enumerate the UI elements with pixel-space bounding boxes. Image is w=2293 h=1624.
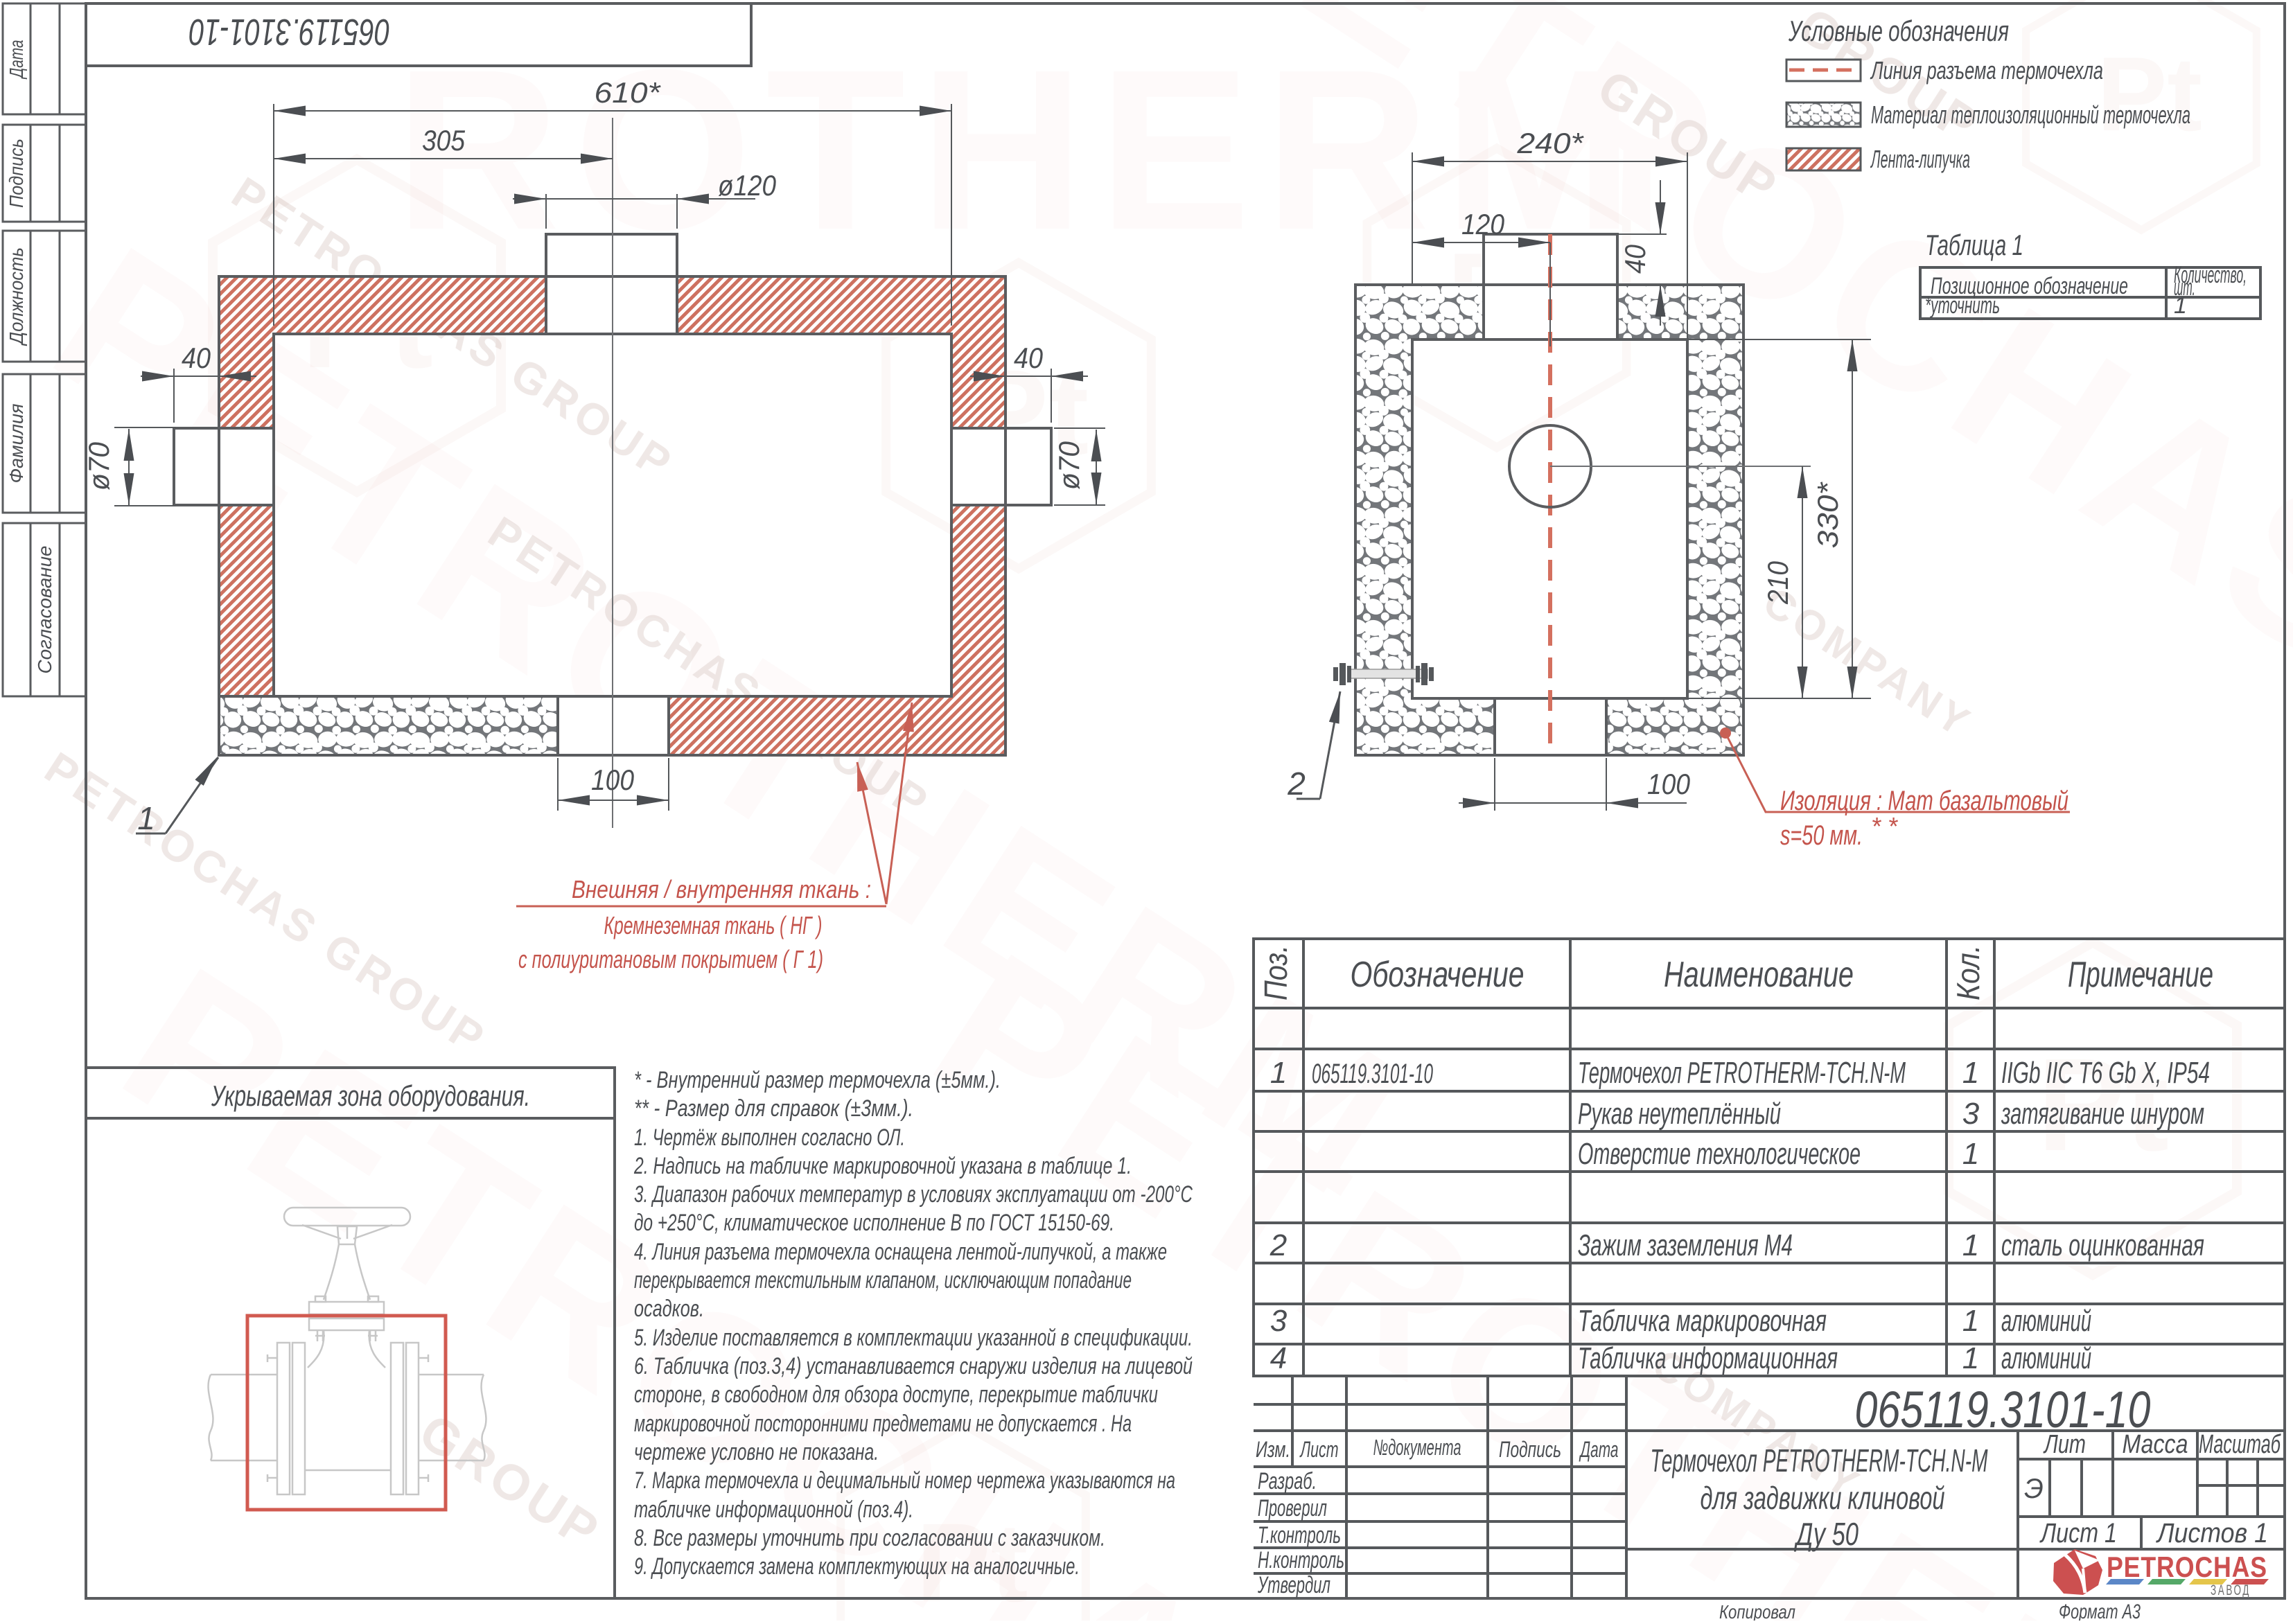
svg-text:Согласование: Согласование xyxy=(34,546,55,674)
svg-text:осадков.: осадков. xyxy=(634,1296,704,1322)
svg-text:Утвердил: Утвердил xyxy=(1257,1572,1330,1598)
svg-text:Масштаб: Масштаб xyxy=(2199,1430,2281,1459)
svg-text:s=50 мм.: s=50 мм. xyxy=(1780,820,1863,851)
svg-text:перекрывается текстильным клап: перекрывается текстильным клапаном, искл… xyxy=(634,1267,1132,1294)
svg-text:330*: 330* xyxy=(1811,482,1844,549)
svg-text:затягивание шнуром: затягивание шнуром xyxy=(2001,1097,2204,1131)
svg-text:1: 1 xyxy=(1962,1304,1979,1338)
svg-text:065119.3101-10: 065119.3101-10 xyxy=(1312,1059,1433,1089)
svg-text:* *: * * xyxy=(1871,812,1898,840)
svg-text:Лист: Лист xyxy=(1299,1437,1338,1462)
svg-text:1: 1 xyxy=(1962,1341,1979,1375)
svg-text:3: 3 xyxy=(1962,1097,1980,1131)
svg-text:маркировочной посторонними пре: маркировочной посторонними предметами не… xyxy=(634,1411,1132,1437)
svg-text:ø70: ø70 xyxy=(1053,441,1085,490)
svg-text:Дата: Дата xyxy=(1579,1437,1619,1462)
svg-text:Дата: Дата xyxy=(6,39,27,79)
svg-text:8. Все размеры уточнить при со: 8. Все размеры уточнить при согласовании… xyxy=(634,1525,1105,1551)
svg-text:Лист 1: Лист 1 xyxy=(2039,1518,2117,1548)
svg-text:065119.3101-10: 065119.3101-10 xyxy=(189,11,390,53)
svg-text:2: 2 xyxy=(1270,1228,1287,1262)
svg-text:Лит: Лит xyxy=(2043,1430,2086,1459)
svg-text:2: 2 xyxy=(1287,766,1306,802)
svg-text:065119.3101-10: 065119.3101-10 xyxy=(1855,1381,2151,1438)
svg-text:2. Надпись на табличке маркиро: 2. Надпись на табличке маркировочной ука… xyxy=(633,1153,1132,1179)
svg-text:120: 120 xyxy=(1461,208,1505,240)
svg-text:1: 1 xyxy=(1962,1137,1979,1171)
svg-text:Н.контроль: Н.контроль xyxy=(1258,1547,1344,1573)
svg-text:3: 3 xyxy=(1270,1304,1288,1338)
svg-text:9. Допускается замена комплект: 9. Допускается замена комплектующих на а… xyxy=(634,1553,1080,1580)
svg-text:стороне, в свободном для обзор: стороне, в свободном для обзора доступе,… xyxy=(634,1382,1158,1408)
svg-text:Изм.: Изм. xyxy=(1256,1437,1290,1462)
svg-text:ø70: ø70 xyxy=(82,441,115,491)
svg-text:Укрываемая зона оборудования.: Укрываемая зона оборудования. xyxy=(211,1079,530,1112)
svg-text:7. Марка термочехла и децималь: 7. Марка термочехла и децимальный номер … xyxy=(634,1467,1175,1494)
svg-text:3. Диапазон рабочих температур: 3. Диапазон рабочих температур в условия… xyxy=(634,1181,1193,1208)
svg-text:Отверстие технологическое: Отверстие технологическое xyxy=(1578,1137,1861,1171)
svg-text:ЗАВОД: ЗАВОД xyxy=(2211,1582,2251,1598)
svg-text:ø120: ø120 xyxy=(718,169,777,202)
svg-text:Обозначение: Обозначение xyxy=(1351,955,1525,995)
svg-text:Внешняя / внутренняя ткань :: Внешняя / внутренняя ткань : xyxy=(572,875,871,903)
svg-text:4. Линия разъема термочехла ос: 4. Линия разъема термочехла оснащена лен… xyxy=(634,1239,1167,1265)
svg-text:1: 1 xyxy=(2174,292,2187,319)
svg-text:40: 40 xyxy=(1619,244,1651,274)
svg-text:Кол.: Кол. xyxy=(1950,945,1986,1000)
svg-text:240*: 240* xyxy=(1516,127,1584,159)
svg-text:Табличка информационная: Табличка информационная xyxy=(1578,1341,1838,1375)
svg-text:Лента-липучка: Лента-липучка xyxy=(1870,145,1970,173)
svg-text:5. Изделие поставляется в комп: 5. Изделие поставляется в комплектации у… xyxy=(634,1325,1193,1351)
svg-text:610*: 610* xyxy=(595,76,662,109)
svg-text:210: 210 xyxy=(1762,561,1794,604)
svg-text:Линия разъема термочехла: Линия разъема термочехла xyxy=(1870,56,2103,85)
svg-text:1: 1 xyxy=(1962,1228,1979,1262)
svg-text:Ду 50: Ду 50 xyxy=(1793,1516,1859,1552)
svg-text:Листов 1: Листов 1 xyxy=(2155,1518,2268,1548)
svg-text:Табличка маркировочная: Табличка маркировочная xyxy=(1578,1304,1827,1338)
svg-text:Масса: Масса xyxy=(2123,1430,2188,1459)
svg-text:Фамилия: Фамилия xyxy=(6,403,27,483)
svg-text:Термочехол PETROTHERM-TCH.N-M: Термочехол PETROTHERM-TCH.N-M xyxy=(1651,1442,1988,1479)
svg-text:6. Табличка (поз.3,4) устанавл: 6. Табличка (поз.3,4) устанавливается сн… xyxy=(634,1353,1193,1379)
svg-text:100: 100 xyxy=(591,764,635,796)
svg-text:Материал теплоизоляционный тер: Материал теплоизоляционный термочехла xyxy=(1871,100,2190,129)
svg-text:1. Чертёж выполнен согласно ОЛ: 1. Чертёж выполнен согласно ОЛ. xyxy=(634,1124,905,1151)
svg-text:алюминий: алюминий xyxy=(2001,1341,2091,1375)
svg-text:*уточнить: *уточнить xyxy=(1925,292,2000,319)
svg-text:305: 305 xyxy=(422,124,466,157)
svg-text:Поз.: Поз. xyxy=(1258,945,1294,1000)
svg-text:40: 40 xyxy=(182,342,211,374)
svg-text:1: 1 xyxy=(1962,1056,1979,1090)
svg-text:Подпись: Подпись xyxy=(1499,1437,1561,1462)
svg-text:Таблица 1: Таблица 1 xyxy=(1925,229,2023,261)
svg-text:Э: Э xyxy=(2024,1474,2044,1504)
svg-text:Зажим заземления М4: Зажим заземления М4 xyxy=(1578,1228,1793,1262)
svg-text:сталь оцинкованная: сталь оцинкованная xyxy=(2001,1228,2204,1262)
svg-text:IIGb IIC T6 Gb X, IP54: IIGb IIC T6 Gb X, IP54 xyxy=(2001,1056,2210,1090)
svg-text:чертеже условно не показана.: чертеже условно не показана. xyxy=(634,1439,879,1465)
svg-text:40: 40 xyxy=(1014,342,1044,374)
svg-text:Рукав неутеплённый: Рукав неутеплённый xyxy=(1578,1097,1781,1131)
svg-text:Изоляция : Мат базальтовый: Изоляция : Мат базальтовый xyxy=(1780,786,2068,816)
svg-text:Разраб.: Разраб. xyxy=(1258,1468,1317,1494)
svg-text:Проверил: Проверил xyxy=(1258,1495,1327,1521)
svg-text:1: 1 xyxy=(137,800,155,836)
svg-text:№документа: №документа xyxy=(1373,1435,1461,1460)
svg-text:** - Размер для справок (±3мм.: ** - Размер для справок (±3мм.). xyxy=(634,1095,913,1122)
svg-text:с полиуритановым покрытием (: с полиуритановым покрытием ( Г 1) xyxy=(518,945,823,973)
svg-text:Наименование: Наименование xyxy=(1664,955,1854,995)
svg-text:PETROCHAS: PETROCHAS xyxy=(2107,1551,2267,1583)
svg-text:Копировал: Копировал xyxy=(1719,1601,1795,1621)
svg-text:Термочехол PETROTHERM-TCH.N-M: Термочехол PETROTHERM-TCH.N-M xyxy=(1578,1056,1906,1090)
svg-text:4: 4 xyxy=(1270,1341,1287,1375)
svg-text:до +250°С, климатическое испол: до +250°С, климатическое исполнение В по… xyxy=(634,1210,1114,1236)
svg-text:Т.контроль: Т.контроль xyxy=(1258,1522,1341,1548)
svg-text:Примечание: Примечание xyxy=(2068,955,2213,995)
svg-text:для задвижки клиновой: для задвижки клиновой xyxy=(1701,1480,1945,1516)
svg-text:Кремнеземная ткань ( НГ ): Кремнеземная ткань ( НГ ) xyxy=(604,911,823,939)
svg-text:табличке информационной (поз.4: табличке информационной (поз.4). xyxy=(634,1497,913,1523)
svg-text:Формат А3: Формат А3 xyxy=(2059,1600,2141,1621)
svg-text:* - Внутренний размер термоче: * - Внутренний размер термочехла (±5мм.)… xyxy=(634,1067,1001,1093)
svg-text:Условные обозначения: Условные обозначения xyxy=(1788,15,2009,47)
svg-text:Подпись: Подпись xyxy=(6,139,27,208)
svg-text:Должность: Должность xyxy=(6,247,27,346)
svg-text:1: 1 xyxy=(1270,1056,1287,1090)
svg-text:100: 100 xyxy=(1647,768,1691,800)
svg-text:алюминий: алюминий xyxy=(2001,1304,2091,1338)
